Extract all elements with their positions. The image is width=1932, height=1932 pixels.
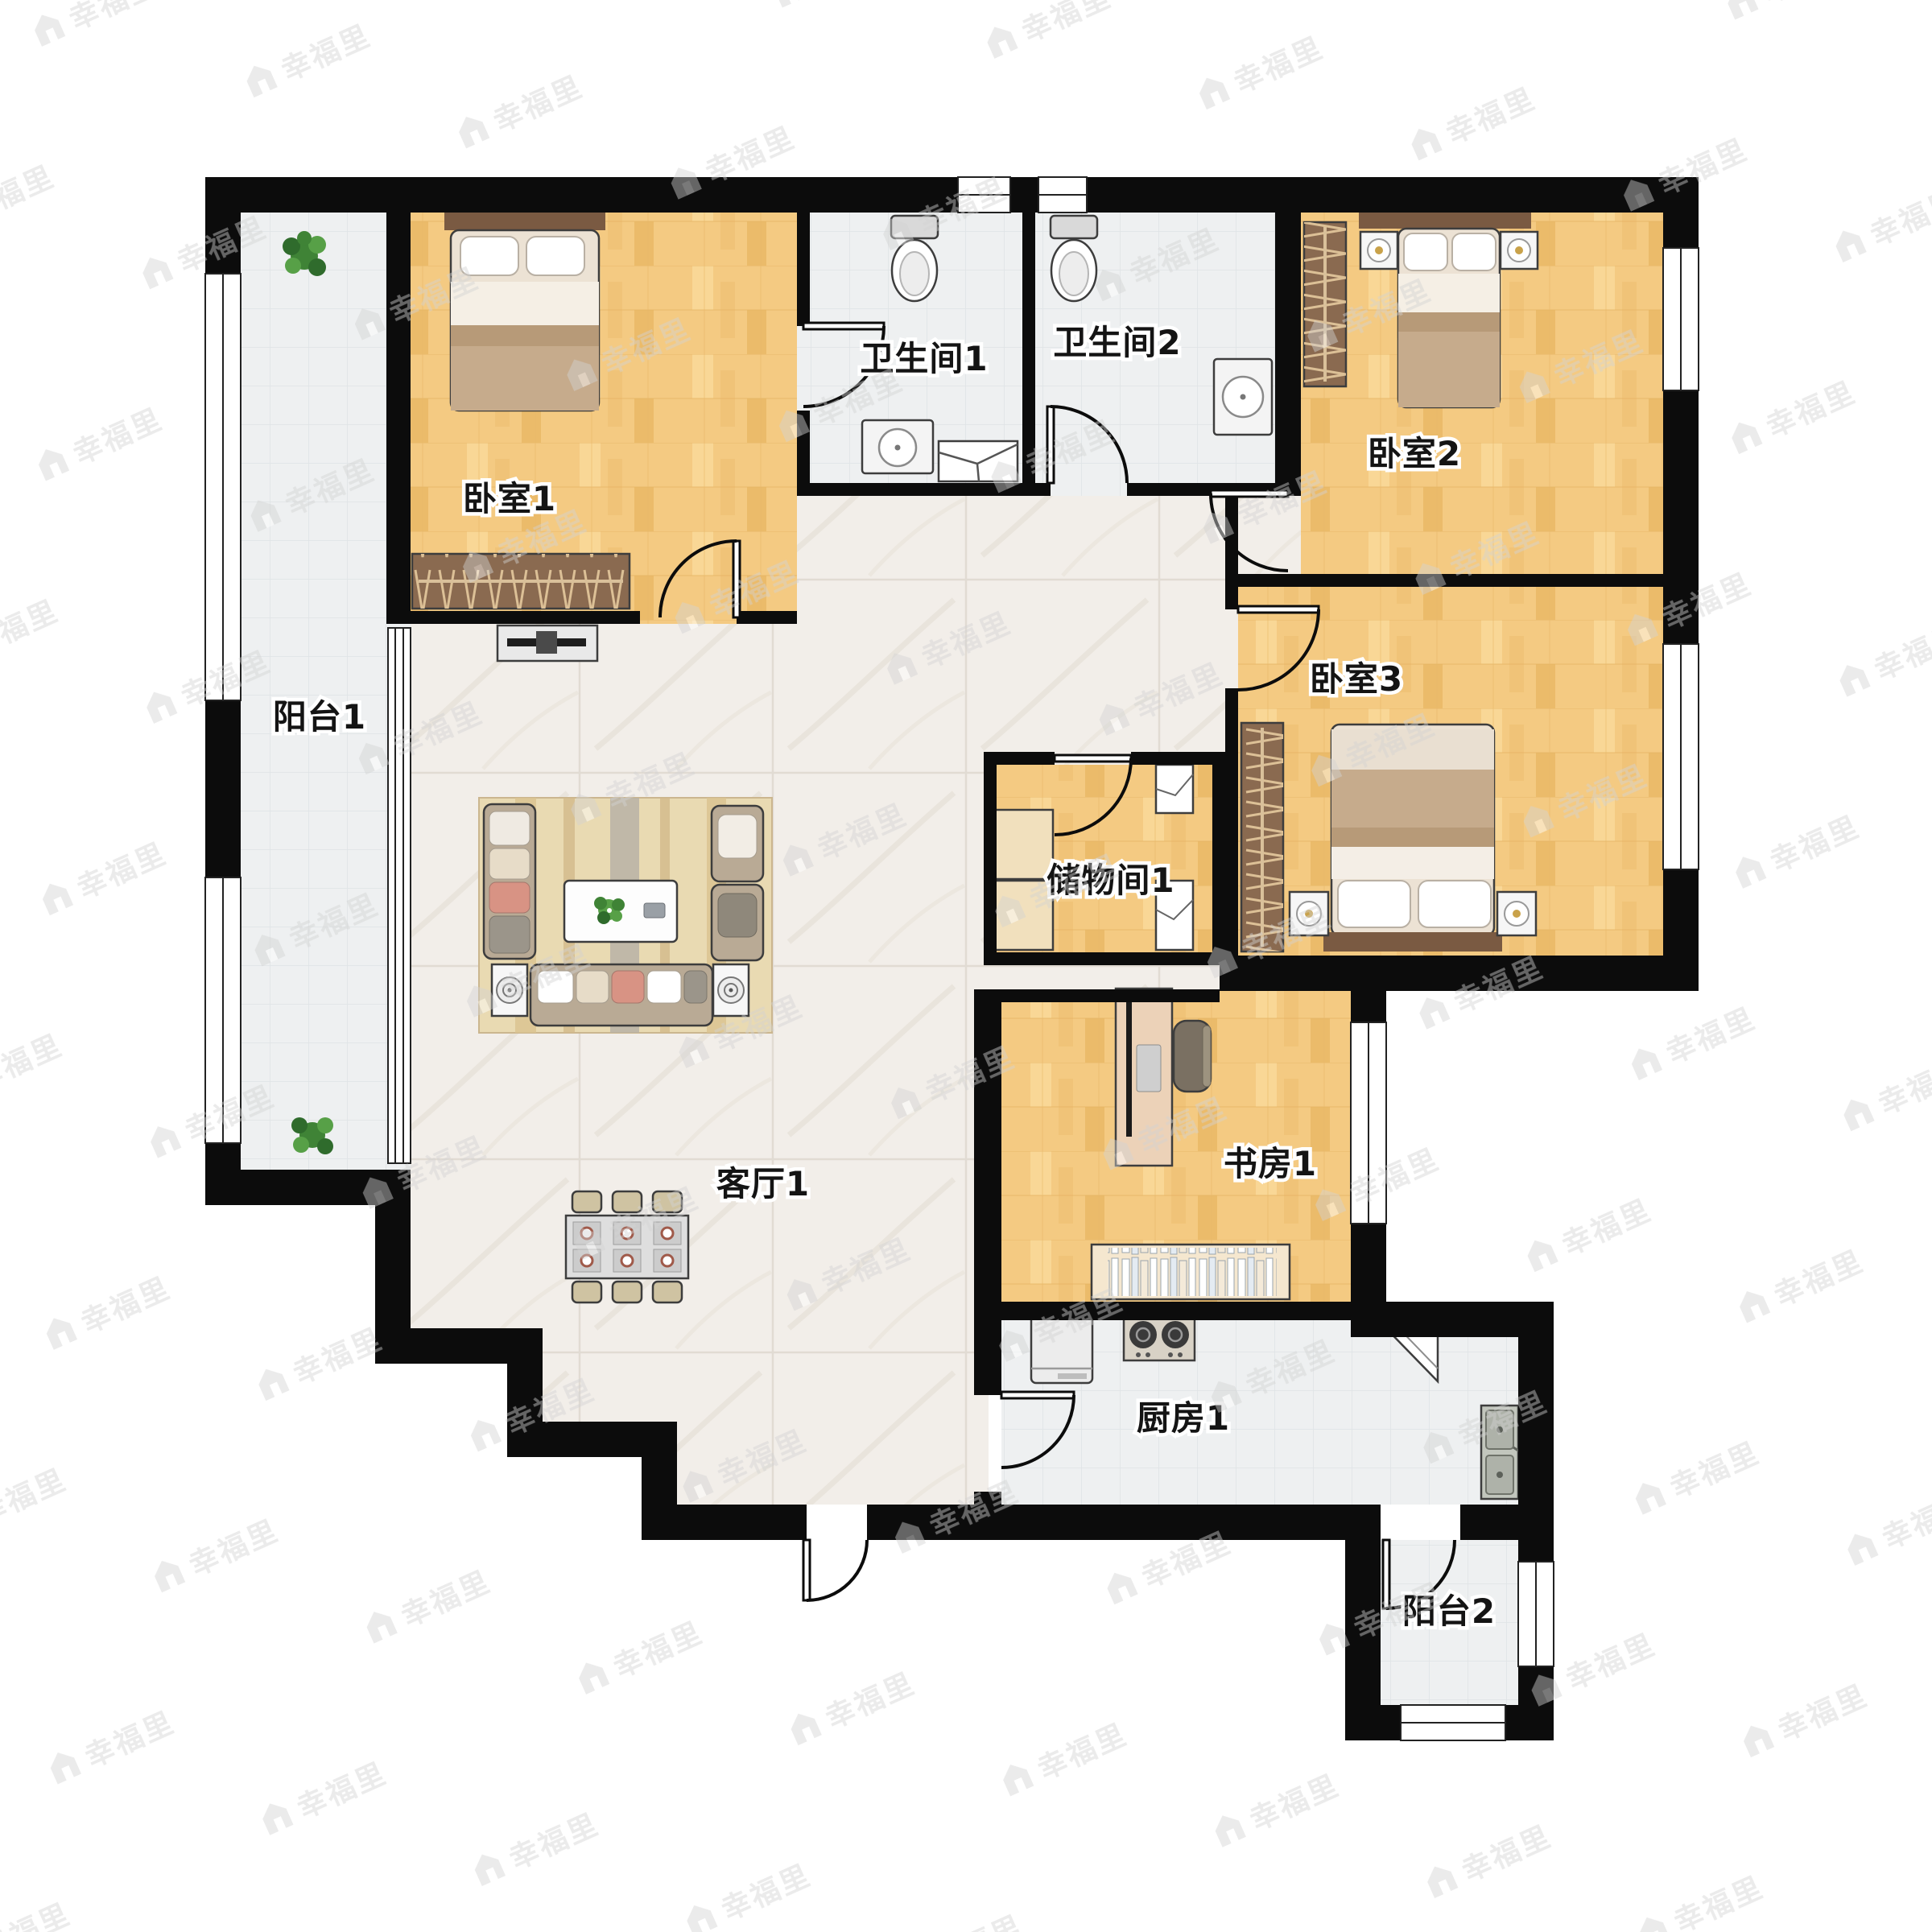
floor-plan-canvas: 幸福里 幸福里: [0, 0, 1932, 1932]
watermark-overlay: [0, 0, 1932, 1932]
